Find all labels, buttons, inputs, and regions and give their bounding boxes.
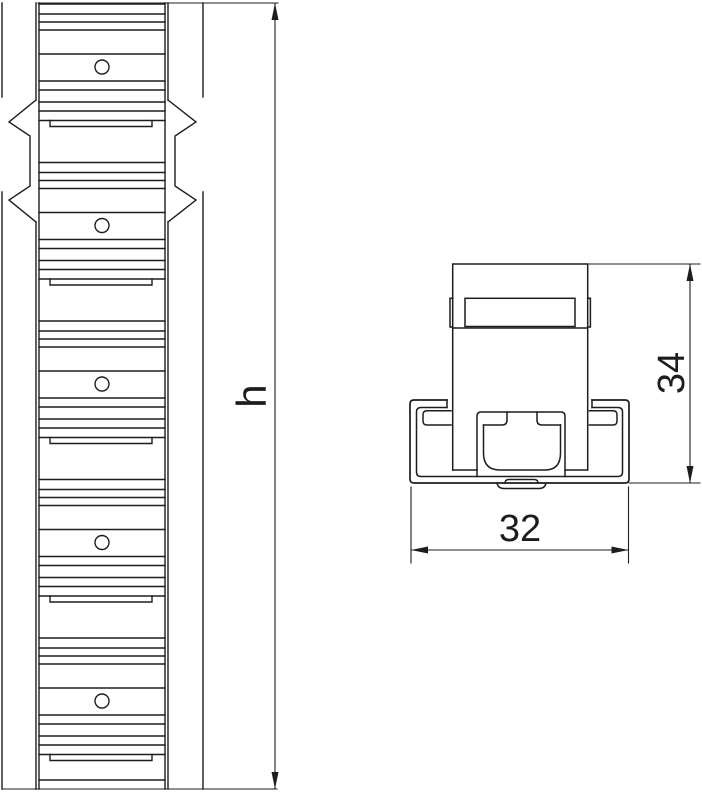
- mounting-hole: [95, 536, 109, 550]
- break-symbol-left: [9, 100, 36, 222]
- top-block-outline: [453, 264, 588, 470]
- slot-lip: [50, 596, 152, 602]
- technical-drawing: h 34 32: [0, 0, 702, 794]
- break-symbol-right: [168, 100, 196, 222]
- dimension-section-width: 32: [411, 487, 629, 563]
- mounting-hole: [95, 694, 109, 708]
- bridge-outer: [477, 412, 565, 477]
- snap-hook-left: [484, 412, 508, 425]
- rail-pattern: [39, 4, 165, 761]
- mounting-hole: [95, 60, 109, 74]
- flange-tab-left: [423, 411, 451, 425]
- slot-lip: [50, 438, 152, 444]
- arrowhead-down: [272, 772, 279, 789]
- inner-panel: [465, 298, 575, 326]
- arrowhead-down: [687, 466, 694, 483]
- technical-drawing-page: h 34 32: [0, 0, 702, 794]
- snap-hook-right: [537, 412, 561, 425]
- bridge-inner: [484, 425, 561, 470]
- dimension-label-34: 34: [651, 352, 693, 394]
- section-view: [410, 264, 629, 489]
- slot-lip: [50, 279, 152, 285]
- dimension-label-h: h: [228, 384, 275, 407]
- dimension-section-height: 34: [588, 264, 700, 483]
- slot-lip: [50, 121, 152, 127]
- mounting-hole: [95, 219, 109, 233]
- arrowhead-up: [272, 3, 279, 20]
- mounting-hole: [95, 377, 109, 391]
- flange-tab-right: [590, 411, 618, 425]
- clamp-inner-contour: [417, 408, 623, 477]
- arrowhead-up: [687, 264, 694, 281]
- front-view: [2, 3, 203, 789]
- dimension-label-32: 32: [499, 508, 541, 550]
- arrowhead-left: [411, 547, 428, 554]
- arrowhead-right: [612, 547, 629, 554]
- slot-lip: [50, 755, 152, 761]
